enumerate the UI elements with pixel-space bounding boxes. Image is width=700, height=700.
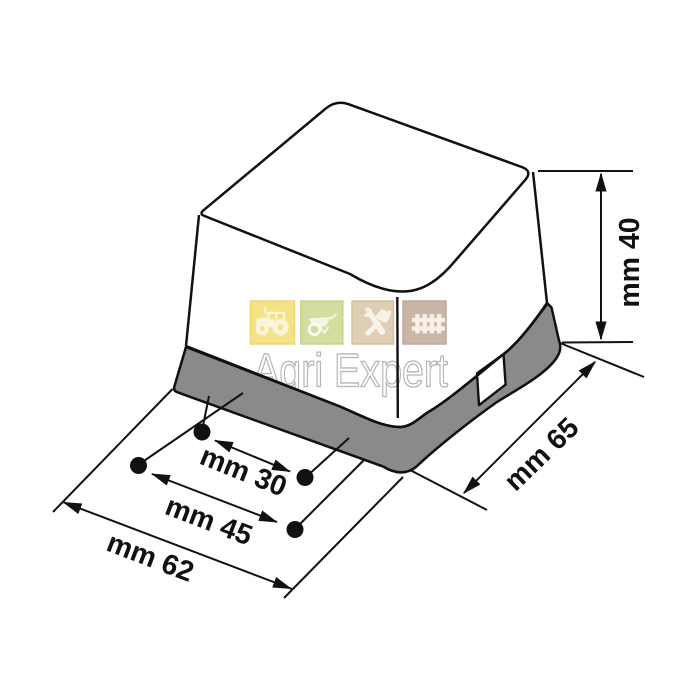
svg-text:mm 40: mm 40 <box>614 217 646 307</box>
